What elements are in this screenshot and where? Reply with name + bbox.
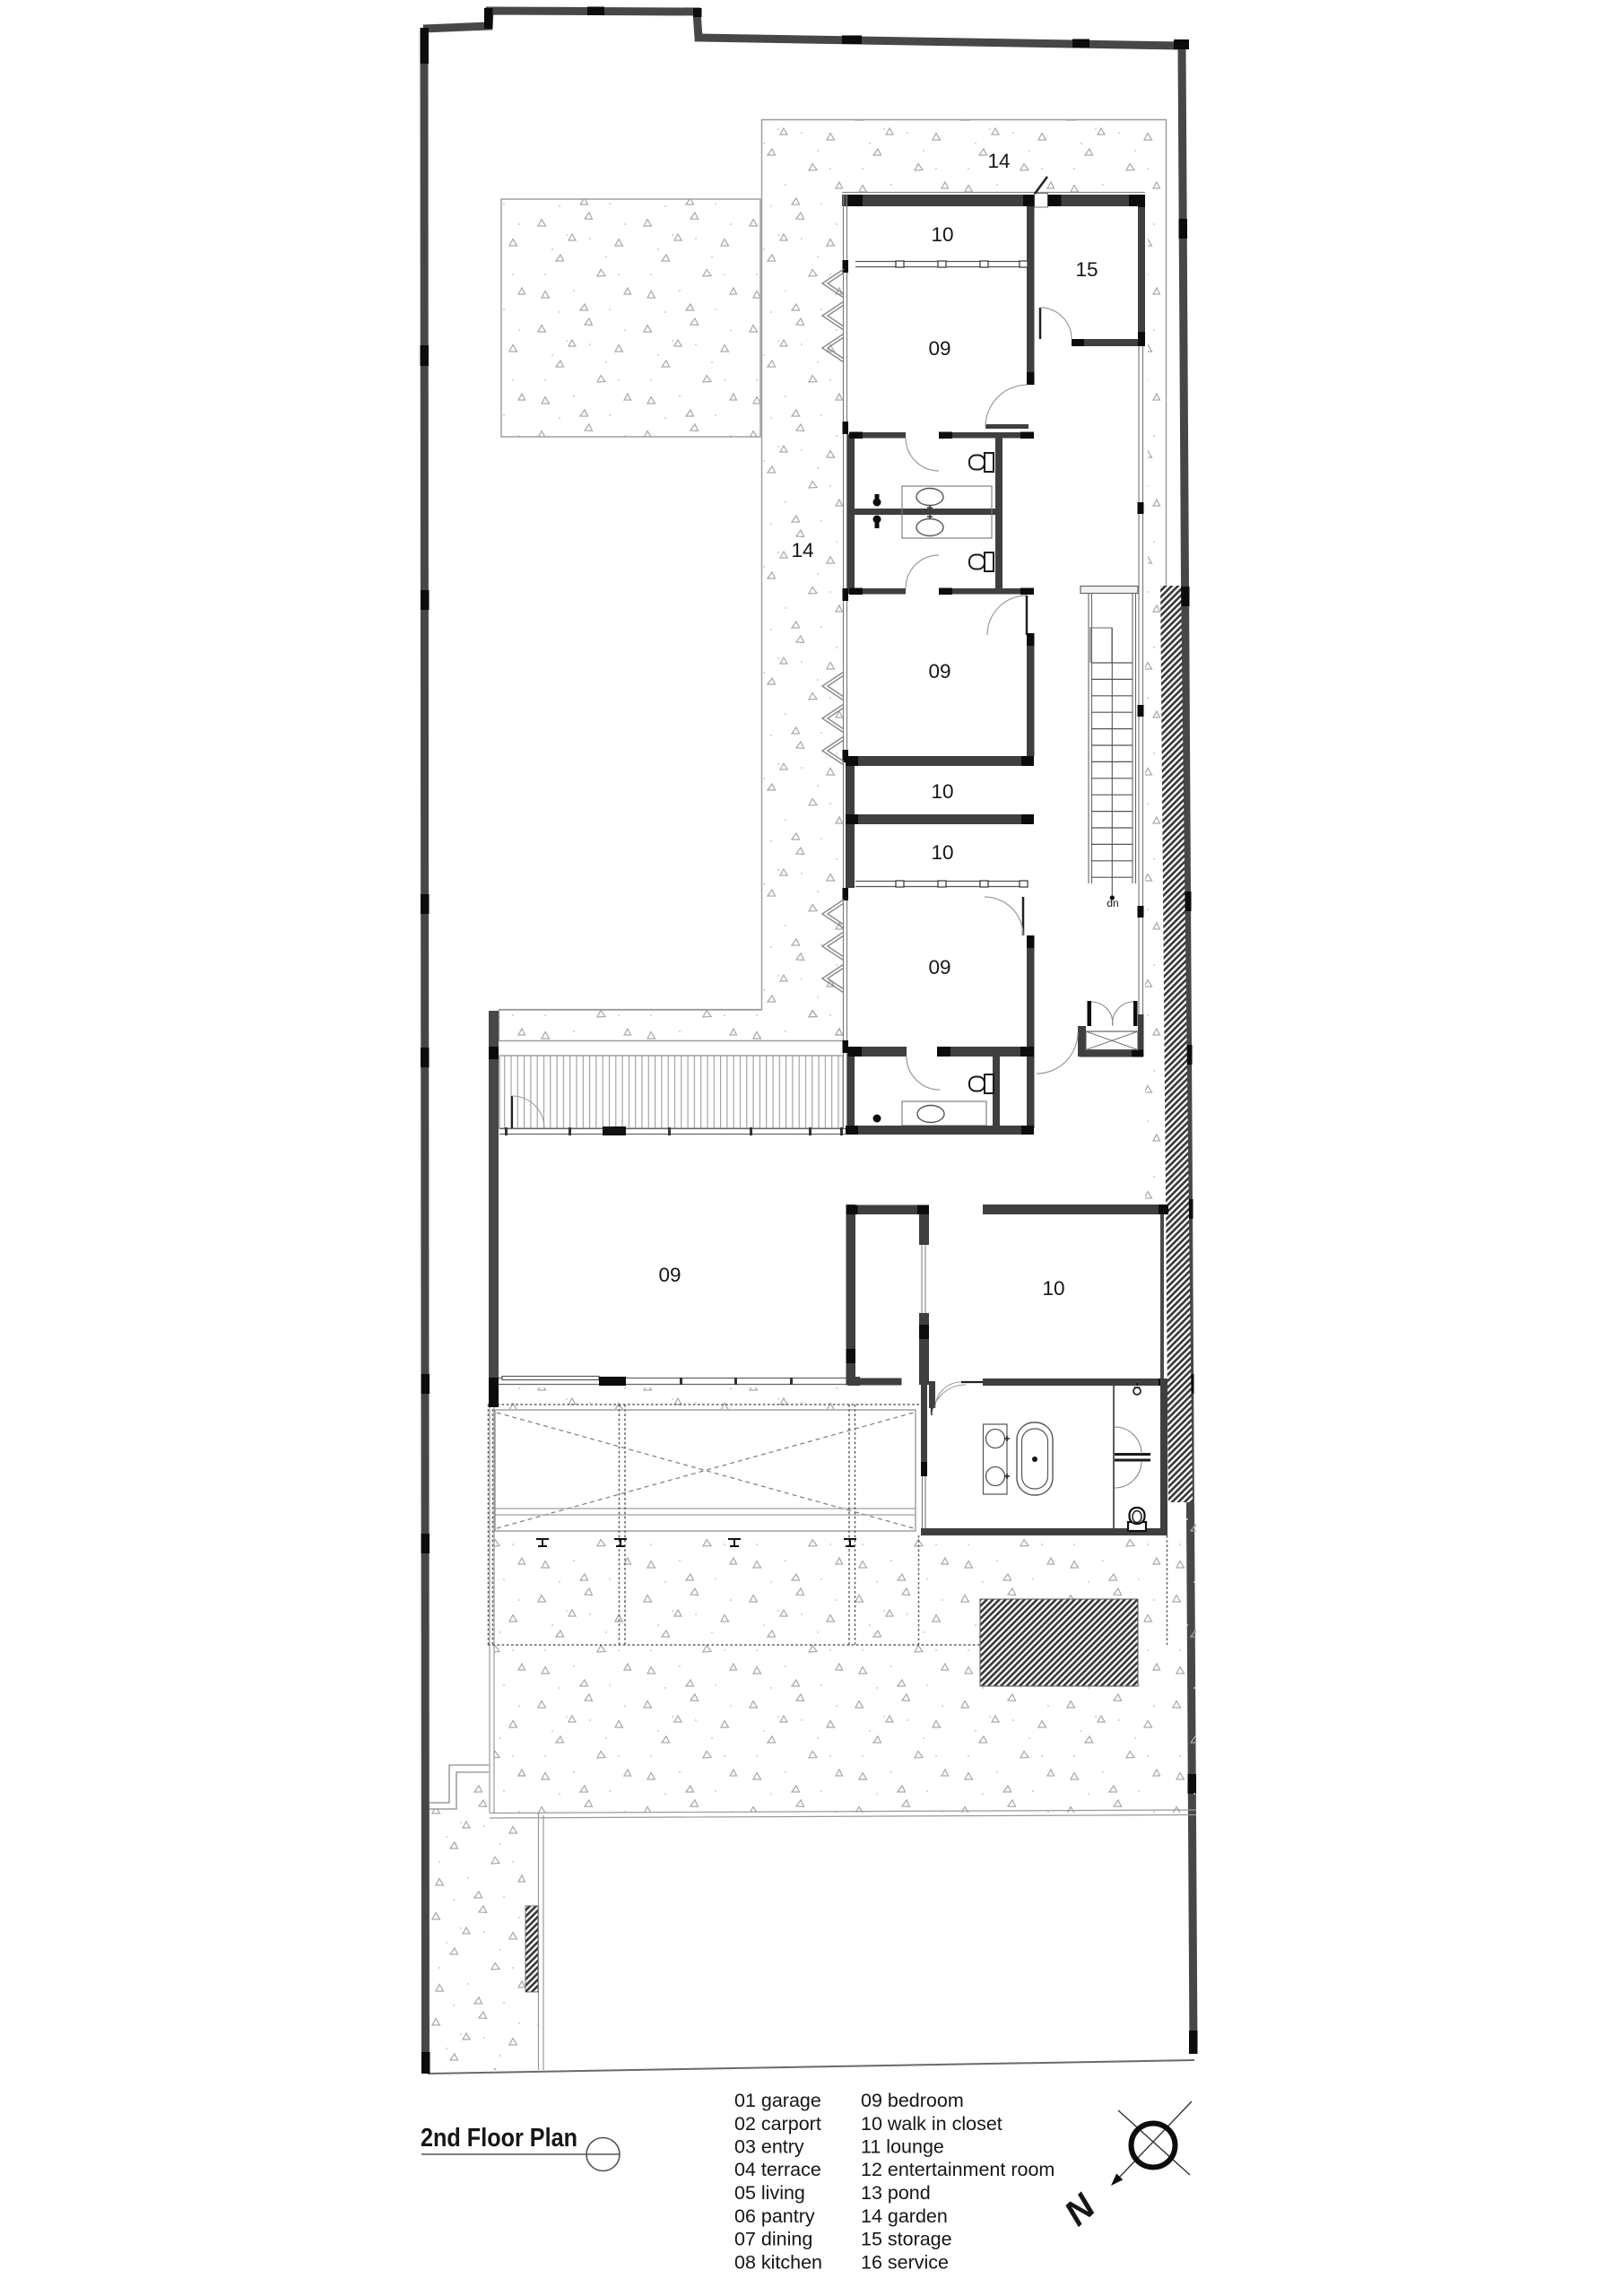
svg-text:2nd Floor Plan: 2nd Floor Plan (421, 2124, 577, 2152)
svg-text:10: 10 (931, 841, 953, 864)
svg-text:03 entry: 03 entry (734, 2136, 804, 2158)
svg-text:05 living: 05 living (734, 2182, 805, 2204)
svg-text:09 bedroom: 09 bedroom (861, 2090, 964, 2111)
svg-text:15: 15 (1075, 258, 1098, 281)
svg-text:07 dining: 07 dining (734, 2228, 812, 2249)
svg-text:10: 10 (931, 223, 953, 246)
svg-text:12 entertainment room: 12 entertainment room (861, 2159, 1055, 2180)
svg-text:13 pond: 13 pond (861, 2182, 931, 2204)
svg-text:04 terrace: 04 terrace (734, 2159, 821, 2180)
svg-text:01 garage: 01 garage (734, 2090, 821, 2111)
svg-text:16 service: 16 service (861, 2251, 949, 2273)
svg-text:10: 10 (1042, 1277, 1064, 1300)
svg-text:15 storage: 15 storage (861, 2228, 952, 2249)
svg-text:02 carport: 02 carport (734, 2113, 821, 2135)
svg-text:08 kitchen: 08 kitchen (734, 2251, 822, 2273)
svg-text:14 garden: 14 garden (861, 2205, 948, 2227)
svg-text:14: 14 (791, 539, 813, 561)
svg-text:dn: dn (1107, 897, 1118, 909)
svg-text:14: 14 (987, 150, 1010, 172)
svg-text:10: 10 (931, 780, 953, 803)
svg-text:06 pantry: 06 pantry (734, 2205, 815, 2227)
svg-text:09: 09 (658, 1264, 681, 1286)
svg-text:09: 09 (928, 337, 950, 360)
svg-text:09: 09 (928, 660, 950, 683)
svg-text:10 walk in closet: 10 walk in closet (861, 2113, 1002, 2135)
svg-text:11 lounge: 11 lounge (861, 2136, 944, 2158)
svg-text:09: 09 (928, 956, 950, 978)
